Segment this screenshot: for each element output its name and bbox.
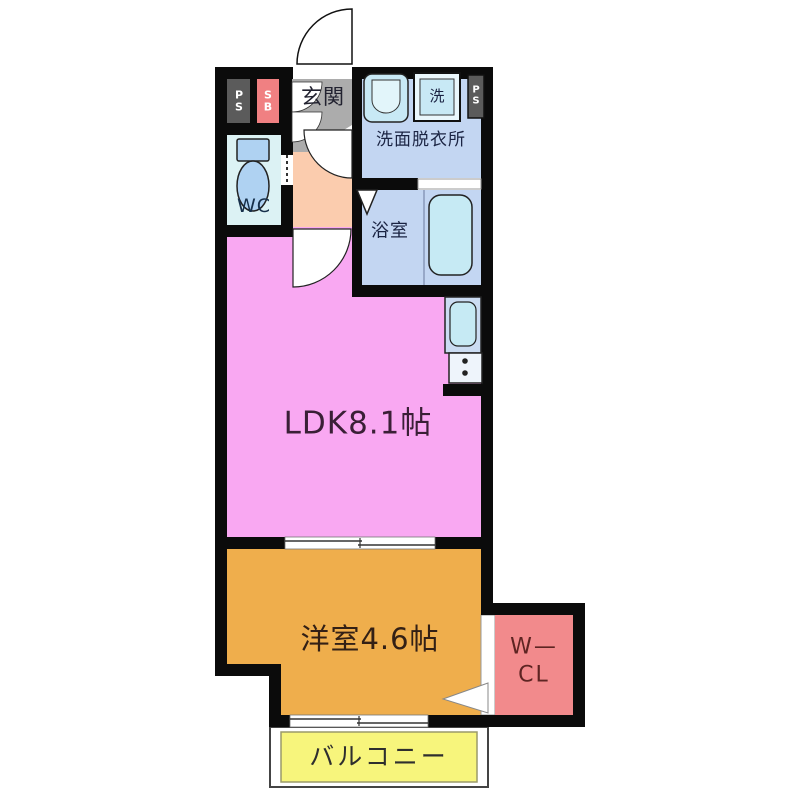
bathroom-label: 浴室 xyxy=(371,223,409,242)
wcl-label-line2: CL xyxy=(510,661,558,689)
washroom-label: 洗面脱衣所 xyxy=(376,132,466,150)
wall-ldk-western-left xyxy=(215,537,285,549)
sb-label: S B xyxy=(264,89,272,112)
burner-dot-1 xyxy=(462,358,468,364)
wall-ldk-western-right xyxy=(435,537,493,549)
sliding-door-ldk-western xyxy=(285,537,435,549)
sliding-window-balcony xyxy=(290,715,428,727)
wall-kitchen-stub xyxy=(443,384,493,396)
ldk-label: LDK8.1帖 xyxy=(284,408,433,441)
wall-wc-right-lower xyxy=(281,185,293,225)
ps-right-label: P S xyxy=(472,86,479,107)
wall-left xyxy=(215,67,227,676)
wall-bottom-right xyxy=(428,715,585,727)
balcony-label: バルコニー xyxy=(309,744,449,770)
entrance-door-arc xyxy=(297,9,352,64)
bathtub-icon xyxy=(424,190,472,285)
floor-plan-drawing xyxy=(0,0,800,800)
wall-bath-bottom xyxy=(352,285,493,297)
wall-closet-right xyxy=(573,603,585,727)
ps-right-line2: S xyxy=(472,96,479,107)
washing-machine-label: 洗 xyxy=(429,89,444,105)
floor-plan-canvas: 玄関 洗面脱衣所 洗 浴室 WC LDK8.1帖 洋室4.6帖 W— CL バル… xyxy=(0,0,800,800)
stove-icon xyxy=(449,353,482,383)
wcl-label-line1: W— xyxy=(510,634,558,662)
wall-wc-right-upper xyxy=(281,123,293,155)
ps-left-label: P S xyxy=(235,89,243,112)
bath-partition-band xyxy=(418,179,481,189)
wall-wc-bottom xyxy=(215,225,293,237)
ps-right-line1: P xyxy=(472,86,479,97)
kitchen-unit xyxy=(445,297,482,383)
ps-left-line1: P xyxy=(235,89,243,101)
wall-bottom-left xyxy=(269,715,290,727)
wall-closet-top xyxy=(481,603,585,615)
sb-line1: S xyxy=(264,89,272,101)
wc-label: WC xyxy=(237,197,271,217)
western-room-label: 洋室4.6帖 xyxy=(300,624,439,654)
wall-right xyxy=(481,67,493,615)
wall-shaft-block xyxy=(215,67,292,135)
washbasin-icon xyxy=(364,74,408,122)
sb-line2: B xyxy=(264,101,272,113)
walk-in-closet-label: W— CL xyxy=(510,634,558,689)
burner-dot-2 xyxy=(462,370,468,376)
wall-bath-divider xyxy=(352,178,418,190)
kitchen-sink-icon xyxy=(450,302,476,346)
entrance-label: 玄関 xyxy=(301,86,345,108)
ps-left-line2: S xyxy=(235,101,243,113)
